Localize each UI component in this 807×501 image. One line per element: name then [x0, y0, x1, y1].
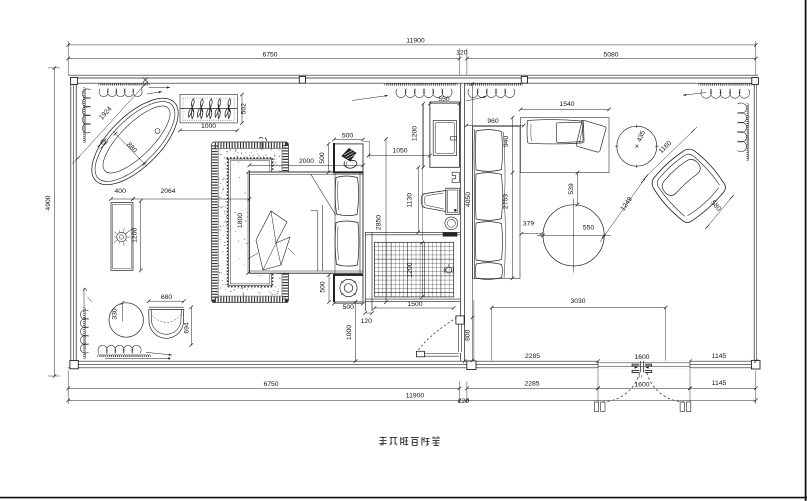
- svg-text:500: 500: [320, 281, 327, 293]
- svg-text:2753: 2753: [503, 194, 510, 209]
- svg-text:940: 940: [503, 136, 510, 148]
- svg-text:2285: 2285: [524, 380, 539, 387]
- svg-text:694: 694: [184, 322, 191, 334]
- svg-text:1200: 1200: [406, 262, 413, 277]
- svg-text:680: 680: [161, 294, 173, 301]
- svg-text:1130: 1130: [407, 193, 414, 208]
- svg-text:4900: 4900: [45, 195, 52, 210]
- svg-text:800: 800: [465, 329, 472, 341]
- svg-text:3030: 3030: [570, 298, 585, 305]
- svg-text:6750: 6750: [263, 381, 278, 388]
- svg-text:550: 550: [583, 225, 595, 232]
- svg-text:2000: 2000: [299, 158, 314, 165]
- svg-text:960: 960: [487, 118, 499, 125]
- svg-text:11900: 11900: [406, 393, 425, 400]
- svg-text:500: 500: [342, 132, 354, 139]
- svg-text:1000: 1000: [201, 123, 216, 130]
- svg-text:1145: 1145: [712, 380, 727, 387]
- svg-text:1145: 1145: [712, 353, 727, 360]
- svg-text:500: 500: [319, 152, 326, 164]
- svg-text:1200: 1200: [132, 228, 139, 243]
- svg-text:1600: 1600: [634, 354, 649, 361]
- svg-text:1500: 1500: [407, 301, 422, 308]
- svg-text:500: 500: [343, 304, 355, 311]
- svg-text:400: 400: [115, 188, 127, 195]
- svg-text:1200: 1200: [412, 126, 419, 141]
- svg-text:550: 550: [438, 96, 450, 103]
- svg-text:1600: 1600: [634, 382, 649, 389]
- svg-text:4050: 4050: [465, 192, 472, 207]
- svg-text:539: 539: [568, 183, 575, 195]
- svg-text:330: 330: [112, 308, 119, 320]
- svg-text:11900: 11900: [406, 38, 425, 45]
- svg-text:1000: 1000: [346, 325, 353, 340]
- svg-text:5080: 5080: [603, 51, 618, 58]
- svg-text:2285: 2285: [525, 353, 540, 360]
- svg-text:379: 379: [523, 221, 535, 228]
- svg-text:120: 120: [361, 318, 373, 325]
- svg-text:1050: 1050: [392, 148, 407, 155]
- svg-text:1800: 1800: [237, 213, 244, 228]
- svg-text:2064: 2064: [160, 188, 175, 195]
- svg-text:502: 502: [241, 103, 248, 115]
- svg-text:2850: 2850: [376, 215, 383, 230]
- svg-text:120: 120: [456, 50, 468, 57]
- svg-text:6750: 6750: [262, 51, 277, 58]
- svg-text:1540: 1540: [559, 101, 574, 108]
